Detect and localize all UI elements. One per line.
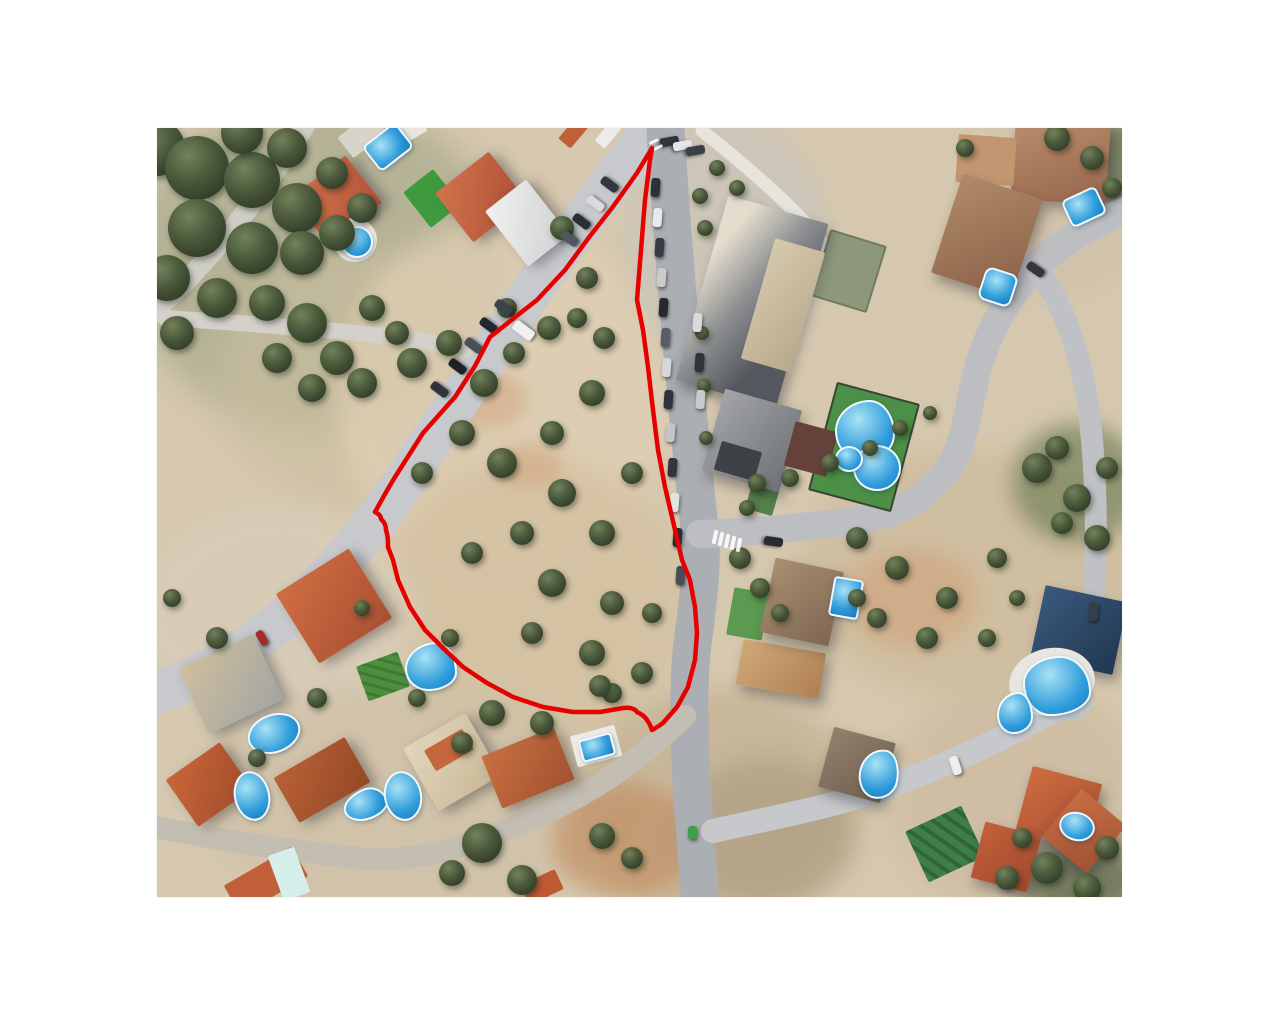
plot-boundary-outline <box>375 148 697 730</box>
satellite-photo <box>157 128 1122 897</box>
